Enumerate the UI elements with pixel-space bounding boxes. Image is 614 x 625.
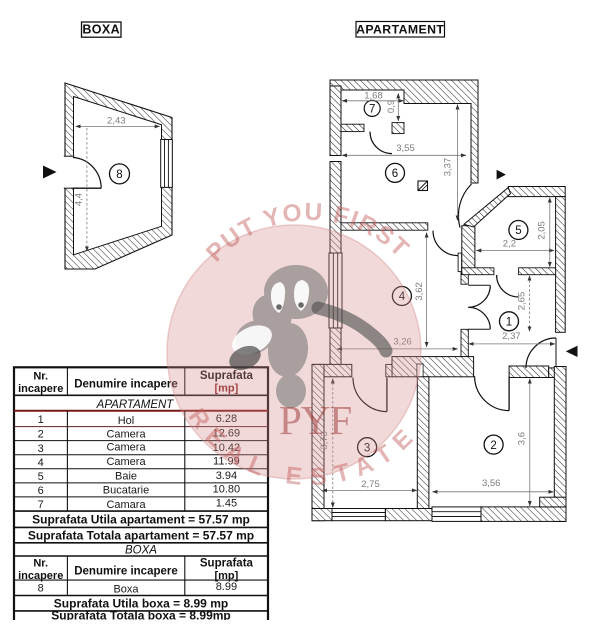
svg-text:Camera: Camera [106,456,146,468]
svg-text:2,37: 2,37 [502,331,521,342]
svg-text:Suprafata: Suprafata [200,557,254,569]
svg-text:3,6: 3,6 [517,432,528,445]
svg-text:Hol: Hol [118,415,135,427]
svg-text:BOXA: BOXA [82,23,120,37]
svg-text:Bucatarie: Bucatarie [103,485,149,497]
svg-text:3,62: 3,62 [414,282,425,301]
svg-text:6: 6 [392,168,398,180]
svg-text:8.99: 8.99 [216,581,237,593]
svg-text:[mp]: [mp] [214,570,238,582]
svg-text:incapere: incapere [18,383,63,395]
svg-text:3,56: 3,56 [482,478,501,489]
svg-text:1,68: 1,68 [364,90,383,101]
svg-text:Suprafata Totala boxa = 8.99m: Suprafata Totala boxa = 8.99mp [51,609,231,620]
svg-text:8: 8 [38,582,44,594]
svg-text:2,2: 2,2 [503,239,516,250]
svg-text:3.94: 3.94 [216,470,237,482]
svg-text:PYF: PYF [279,397,351,443]
svg-text:3,55: 3,55 [396,143,415,154]
svg-text:Nr.: Nr. [33,558,48,570]
svg-text:Camara: Camara [106,499,146,511]
svg-text:1.45: 1.45 [216,498,237,510]
svg-text:5: 5 [38,471,44,483]
svg-text:4,4: 4,4 [74,193,85,206]
svg-text:10.80: 10.80 [213,484,241,496]
svg-text:4: 4 [38,457,44,469]
svg-text:Denumire incapere: Denumire incapere [74,565,178,577]
svg-text:1: 1 [38,414,44,426]
svg-text:8: 8 [116,169,122,181]
svg-text:APARTAMENT: APARTAMENT [96,399,175,411]
svg-text:APARTAMENT: APARTAMENT [356,22,444,36]
svg-text:2,65: 2,65 [516,292,527,311]
svg-text:Boxa: Boxa [113,583,139,595]
svg-text:Nr.: Nr. [33,371,48,383]
svg-text:3: 3 [38,443,44,455]
svg-text:2: 2 [38,428,44,440]
svg-text:7: 7 [38,499,44,511]
svg-text:Denumire incapere: Denumire incapere [74,378,178,390]
svg-text:Suprafata Utila apartament = 5: Suprafata Utila apartament = 57.57 mp [32,512,250,526]
svg-text:5: 5 [515,225,521,237]
svg-text:BOXA: BOXA [125,544,157,556]
svg-text:2,05: 2,05 [536,221,547,240]
svg-text:1: 1 [506,317,512,329]
svg-text:Camera: Camera [106,428,146,440]
svg-text:3,37: 3,37 [442,158,453,177]
svg-text:7: 7 [369,103,375,115]
svg-text:Camera: Camera [106,442,146,454]
svg-text:Suprafata Totala apartament =: Suprafata Totala apartament = 57.57 mp [28,528,254,542]
svg-text:0,9: 0,9 [386,100,397,113]
svg-text:2,43: 2,43 [107,115,126,126]
svg-text:Baie: Baie [115,471,137,483]
svg-text:6: 6 [38,485,44,497]
svg-text:incapere: incapere [18,570,63,582]
svg-text:2: 2 [490,440,496,452]
